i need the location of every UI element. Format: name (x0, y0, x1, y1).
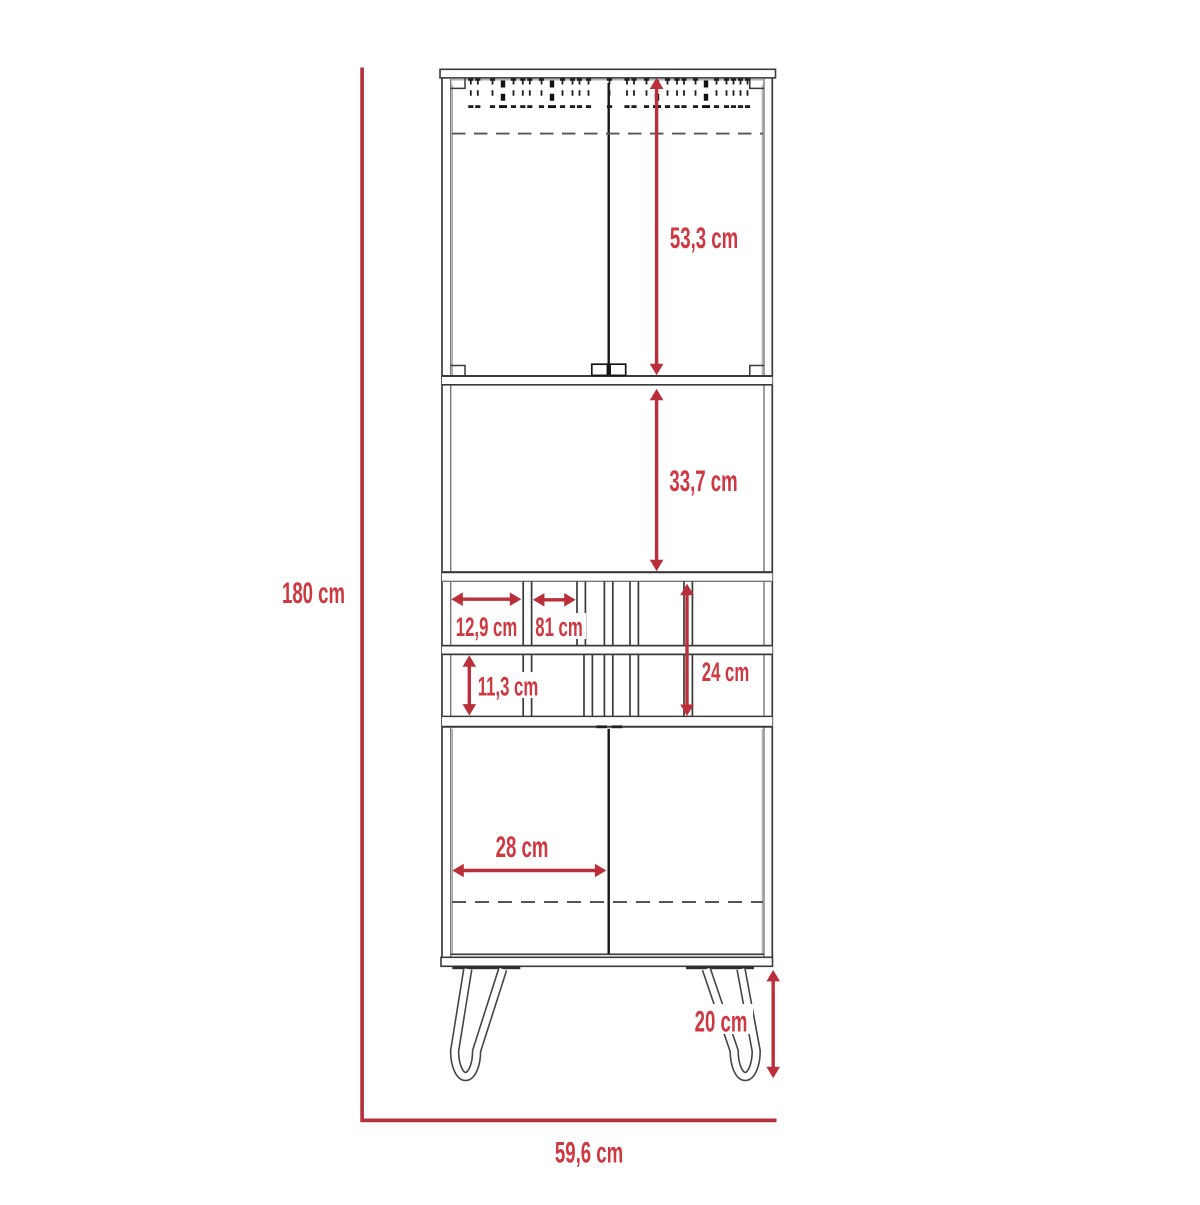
svg-text:81 cm: 81 cm (535, 612, 582, 642)
svg-text:24 cm: 24 cm (702, 657, 749, 687)
svg-text:20 cm: 20 cm (695, 1005, 748, 1039)
svg-text:12,9 cm: 12,9 cm (456, 612, 517, 642)
svg-text:11,3 cm: 11,3 cm (478, 671, 538, 701)
svg-text:33,7 cm: 33,7 cm (669, 465, 737, 499)
svg-text:59,6 cm: 59,6 cm (555, 1136, 623, 1170)
svg-text:180 cm: 180 cm (282, 577, 345, 611)
svg-text:28 cm: 28 cm (496, 831, 549, 865)
svg-text:53,3 cm: 53,3 cm (670, 222, 738, 256)
